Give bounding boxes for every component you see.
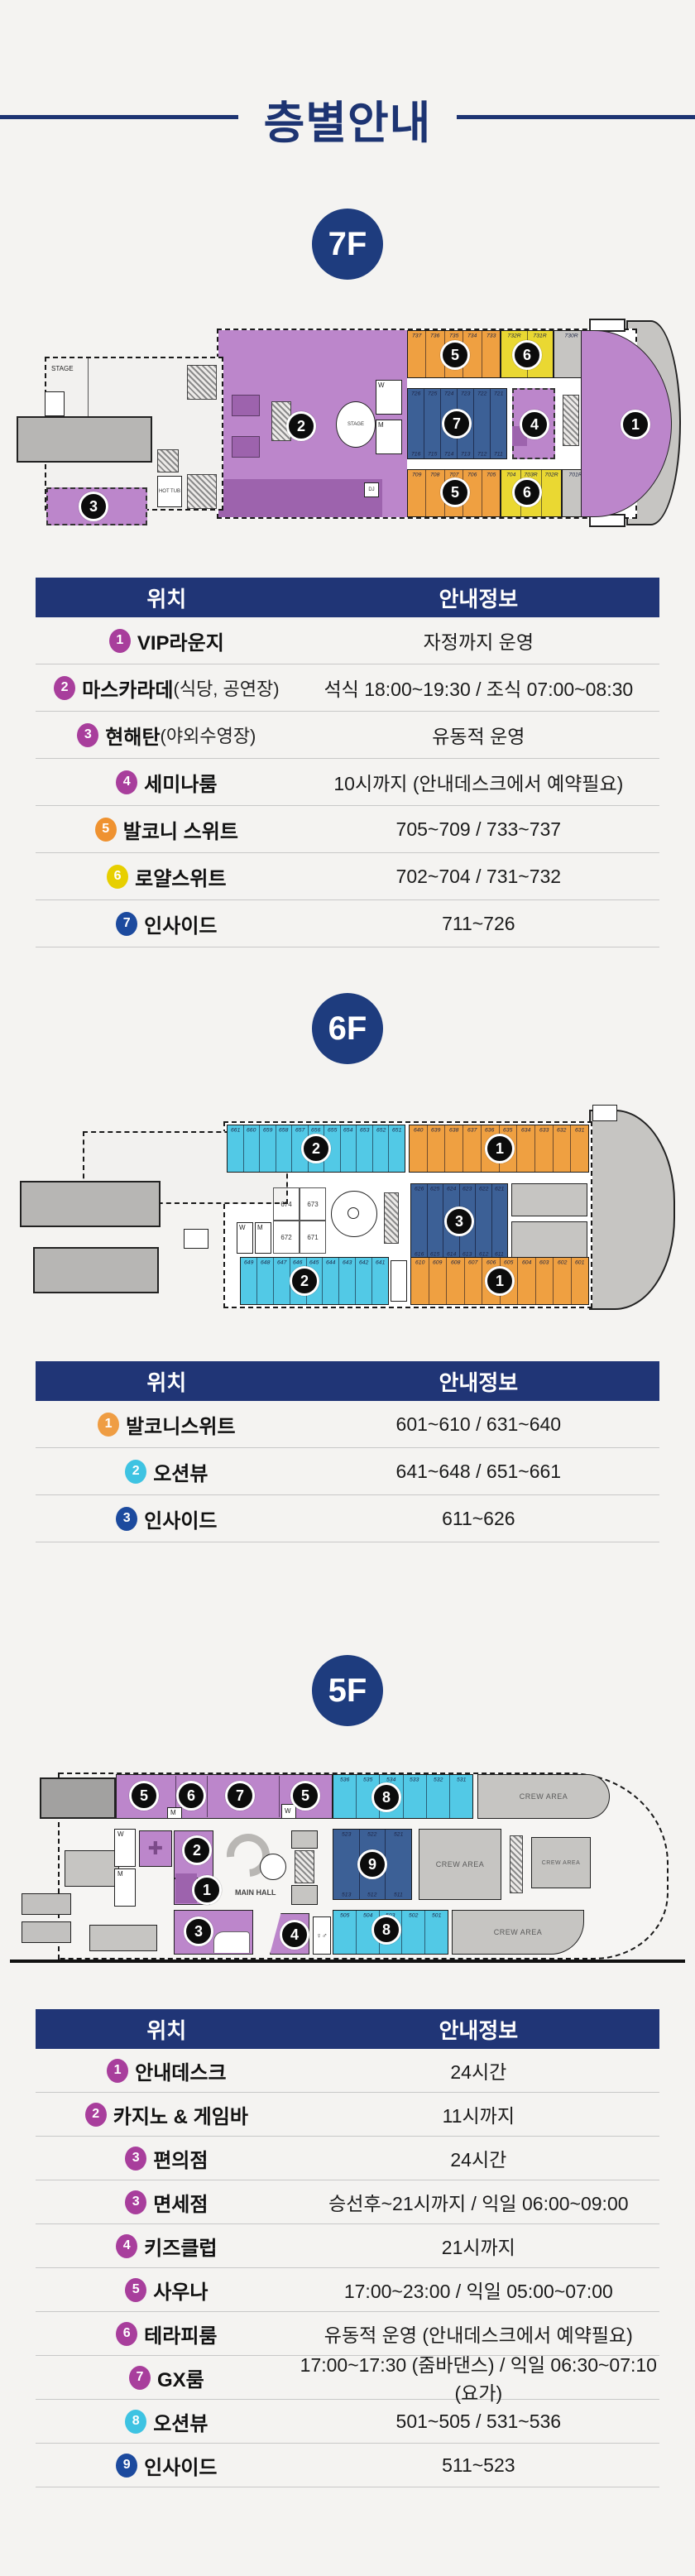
deck-plan-7f: DJ STAGE W M STAGE HOT TUB 7377367357347…	[10, 319, 685, 544]
table-row: 7 인사이드 711~726	[36, 900, 659, 947]
plan-marker-1: 1	[192, 1875, 222, 1905]
plan-marker-2: 2	[182, 1835, 212, 1865]
cabin-cell: 709	[408, 470, 426, 516]
location-cell: 2 오션뷰	[36, 1457, 298, 1486]
toilet-w-mid-label: W	[117, 1830, 124, 1838]
cabin-cell: 653	[357, 1125, 373, 1172]
location-info: 601~610 / 631~640	[298, 1413, 659, 1436]
venue-stage-label: STAGE	[347, 422, 364, 428]
cabin-cell: 602	[554, 1258, 572, 1304]
main-hall-label: MAIN HALL	[235, 1888, 276, 1897]
cabin-cell: 660	[244, 1125, 261, 1172]
deck-badge-6f: 6F	[312, 993, 383, 1064]
location-number-badge: 4	[116, 2234, 137, 2258]
toilet-m-label: M	[378, 421, 384, 429]
location-info: 승선후~21시까지 / 익일 06:00~09:00	[298, 2188, 659, 2216]
location-cell: 8 오션뷰	[36, 2407, 298, 2436]
plan-marker-2: 2	[286, 411, 316, 441]
table-row: 9 인사이드 511~523	[36, 2444, 659, 2487]
cabin-cell: 536	[333, 1775, 357, 1818]
table-row: 4 세미나룸 10시까지 (안내데스크에서 예약필요)	[36, 759, 659, 806]
elevator-7f	[563, 395, 579, 446]
cabin-cell: 616	[411, 1221, 428, 1259]
cabin-cell: 642	[356, 1258, 372, 1304]
location-number-badge: 5	[95, 818, 117, 842]
location-name: 마스카라데	[82, 674, 173, 703]
deck-plan-5f: M W 536535534533532531 CREW AREA W M ✚ M…	[10, 1771, 685, 1976]
location-subtitle: (식당, 공연장)	[174, 674, 280, 701]
small-room: 672	[273, 1221, 300, 1254]
cabin-cell: 632	[554, 1125, 572, 1172]
location-number-badge: 1	[98, 1413, 119, 1437]
cabin-cell: 715	[424, 424, 441, 458]
facility-divider-2	[207, 1776, 208, 1817]
bow-hull-6f	[589, 1110, 675, 1310]
plan-marker-2-top: 2	[301, 1134, 331, 1163]
cabin-cell: 521	[386, 1830, 411, 1864]
toilet-w-label-6f: W	[239, 1224, 246, 1231]
location-name: 오션뷰	[153, 2407, 208, 2436]
location-cell: 7 GX룸	[36, 2363, 298, 2392]
location-number-badge: 6	[107, 865, 128, 889]
location-info: 641~648 / 651~661	[298, 1461, 659, 1483]
deck-table-6f: 위치 안내정보 1 발코니스위트 601~610 / 631~640 2 오션뷰…	[36, 1361, 659, 1542]
location-cell: 4 세미나룸	[36, 768, 298, 797]
deck-seating-bottom	[187, 474, 217, 509]
cabin-cell: 505	[333, 1911, 357, 1954]
toilet-m-7f: M	[376, 420, 402, 454]
plan-marker-6: 6	[176, 1781, 206, 1811]
location-name: 오션뷰	[153, 1457, 208, 1486]
crew-box-6f-top	[511, 1183, 587, 1216]
toilet-w-7f: W	[376, 380, 402, 415]
crew-area-label: CREW AREA	[542, 1860, 581, 1866]
toilet-m-6f: M	[255, 1222, 271, 1254]
cabin-cell: 625	[428, 1184, 444, 1221]
small-room: 674	[273, 1187, 300, 1221]
cabin-cell: 634	[517, 1125, 535, 1172]
location-info: 24시간	[298, 2056, 659, 2084]
lifeboat-5f-1	[65, 1850, 119, 1887]
crew-area-label: CREW AREA	[520, 1792, 568, 1801]
plan-marker-7: 7	[225, 1781, 255, 1811]
location-info: 10시까지 (안내데스크에서 예약필요)	[298, 768, 659, 796]
m-label-5f: M	[170, 1809, 176, 1816]
cabin-cell: 647	[274, 1258, 290, 1304]
plan-marker-1-top: 1	[485, 1134, 515, 1163]
location-cell: 6 테라피룸	[36, 2319, 298, 2348]
location-info: 702~704 / 731~732	[298, 866, 659, 888]
cabin-cell: 641	[372, 1258, 388, 1304]
elevator-6f	[384, 1192, 399, 1244]
cabin-cell: 622	[476, 1184, 492, 1221]
hot-tub: HOT TUB	[157, 476, 182, 507]
location-info: 자정까지 운영	[298, 626, 659, 655]
location-number-badge: 3	[125, 2147, 146, 2171]
facility-divider-3	[279, 1776, 280, 1817]
location-number-badge: 1	[107, 2059, 128, 2083]
location-subtitle: (야외수영장)	[161, 722, 256, 748]
cabin-cell: 612	[476, 1221, 492, 1259]
cabin-cell: 651	[389, 1125, 405, 1172]
kids-play-structure	[213, 1931, 250, 1953]
location-info: 611~626	[298, 1508, 659, 1530]
toilet-mid-6f	[391, 1260, 407, 1302]
plan-marker-3: 3	[79, 492, 108, 521]
location-name: 카지노 & 게임바	[113, 2100, 248, 2129]
lifeboat-5f-2	[89, 1925, 157, 1951]
cabin-cell: 649	[241, 1258, 257, 1304]
table-row: 1 안내데스크 24시간	[36, 2049, 659, 2093]
cabin-cell: 601	[572, 1258, 589, 1304]
plan-marker-4: 4	[520, 410, 549, 439]
cabin-cell: 726	[408, 389, 424, 424]
table-row: 4 키즈클럽 21시까지	[36, 2224, 659, 2268]
location-name: 인사이드	[144, 2451, 217, 2480]
cabin-cell: 523	[333, 1830, 360, 1864]
location-name: 면세점	[153, 2188, 208, 2217]
location-number-badge: 2	[54, 676, 75, 700]
location-number-badge: 3	[116, 1507, 137, 1531]
venue-furniture-2	[232, 436, 260, 458]
bow-notch-6f	[592, 1105, 617, 1121]
cabin-cell: 705	[482, 470, 500, 516]
location-name: 로얄스위트	[135, 862, 226, 891]
plan-marker-2-bottom: 2	[290, 1266, 319, 1296]
cabin-cell: 637	[463, 1125, 482, 1172]
cabin-cell: 513	[333, 1864, 360, 1899]
elevator-lobby-top	[291, 1830, 318, 1849]
spiral-staircase-6f	[331, 1191, 377, 1237]
plan-marker-7: 7	[442, 409, 472, 439]
location-cell: 3 인사이드	[36, 1504, 298, 1533]
cabin-cell: 711	[491, 424, 506, 458]
cabin-cell: 644	[323, 1258, 339, 1304]
plan-marker-8-top: 8	[371, 1782, 401, 1812]
location-name: 편의점	[153, 2144, 208, 2173]
location-number-badge: 7	[129, 2366, 151, 2390]
table-row: 5 사우나 17:00~23:00 / 익일 05:00~07:00	[36, 2268, 659, 2312]
location-info: 11시까지	[298, 2100, 659, 2128]
location-cell: 3 현해탄(야외수영장)	[36, 721, 298, 750]
col-header-info: 안내정보	[298, 1366, 659, 1397]
venue-furniture-1	[232, 395, 260, 416]
cabin-cell: 654	[341, 1125, 357, 1172]
cabin-cell: 659	[260, 1125, 276, 1172]
cabin-cell: 631	[571, 1125, 588, 1172]
location-info: 유동적 운영	[298, 721, 659, 749]
table-row: 1 발코니스위트 601~610 / 631~640	[36, 1401, 659, 1448]
location-info: 유동적 운영 (안내데스크에서 예약필요)	[298, 2319, 659, 2348]
table-body-5f: 1 안내데스크 24시간 2 카지노 & 게임바 11시까지 3 편의점 24시…	[36, 2049, 659, 2487]
deck-seating-mid	[157, 449, 179, 473]
venue-stage: STAGE	[336, 401, 376, 448]
location-number-badge: 1	[109, 629, 131, 653]
spiral-core	[347, 1207, 359, 1219]
cabin-cell: 603	[536, 1258, 554, 1304]
cabin-cell: 532	[427, 1775, 450, 1818]
plan-marker-6-top: 6	[512, 340, 542, 370]
col-header-info: 안내정보	[298, 583, 659, 613]
plan-marker-5a: 5	[129, 1781, 159, 1811]
location-name: GX룸	[157, 2363, 204, 2392]
masquerade-dark-strip	[218, 479, 382, 517]
location-info: 석식 18:00~19:30 / 조식 07:00~08:30	[298, 674, 659, 702]
toilet-bottom-5f: ♀♂	[313, 1916, 331, 1955]
cabin-cell: 608	[447, 1258, 465, 1304]
plan-marker-5b: 5	[290, 1781, 320, 1811]
location-number-badge: 9	[116, 2454, 137, 2478]
location-cell: 9 인사이드	[36, 2451, 298, 2480]
table-row: 6 로얄스위트 702~704 / 731~732	[36, 853, 659, 900]
crew-area-bottom: CREW AREA	[452, 1910, 584, 1955]
plan-marker-5-top: 5	[440, 340, 470, 370]
location-number-badge: 3	[125, 2190, 146, 2214]
table-row: 2 오션뷰 641~648 / 651~661	[36, 1448, 659, 1495]
table-row: 3 편의점 24시간	[36, 2137, 659, 2180]
table-header-7f: 위치 안내정보	[36, 578, 659, 617]
location-name: 사우나	[153, 2276, 208, 2305]
deck-table-5f: 위치 안내정보 1 안내데스크 24시간 2 카지노 & 게임바 11시까지 3…	[36, 2009, 659, 2487]
crew-stairs	[510, 1835, 523, 1893]
toilet-m-label-6f: M	[257, 1224, 263, 1231]
cabin-cell: 610	[411, 1258, 429, 1304]
crew-area-bow: CREW AREA	[531, 1837, 591, 1888]
cabin-cell: 609	[429, 1258, 448, 1304]
location-info: 711~726	[298, 913, 659, 935]
title-line-right	[457, 115, 695, 119]
cabin-cell: 737	[408, 331, 426, 377]
cabin-cell: 648	[257, 1258, 274, 1304]
location-cell: 1 VIP라운지	[36, 626, 298, 655]
location-name: 발코니스위트	[126, 1410, 235, 1439]
lifeboat-bar-6f-top	[20, 1181, 161, 1227]
location-cell: 6 로얄스위트	[36, 862, 298, 891]
cabin-cell: 626	[411, 1184, 428, 1221]
deck-table-7f: 위치 안내정보 1 VIP라운지 자정까지 운영 2 마스카라데(식당, 공연장…	[36, 578, 659, 947]
medical-room: ✚	[139, 1830, 172, 1867]
location-info: 511~523	[298, 2454, 659, 2477]
cabin-cell: 640	[410, 1125, 428, 1172]
table-row: 3 현해탄(야외수영장) 유동적 운영	[36, 712, 659, 759]
table-body-7f: 1 VIP라운지 자정까지 운영 2 마스카라데(식당, 공연장) 석식 18:…	[36, 617, 659, 947]
cabin-cell: 502	[402, 1911, 425, 1954]
stern-structure-5f	[40, 1777, 116, 1819]
stern-box-5f-2	[22, 1921, 71, 1943]
hall-feature-circle	[260, 1854, 286, 1880]
cabin-cell: 733	[482, 331, 500, 377]
location-name: 키즈클럽	[144, 2232, 217, 2261]
deck-stage-label: STAGE	[51, 365, 74, 372]
deck-divider	[88, 358, 89, 418]
hot-tub-label: HOT TUB	[159, 489, 180, 495]
location-name: 안내데스크	[135, 2056, 226, 2085]
cross-icon: ✚	[148, 1838, 163, 1859]
location-number-badge: 2	[125, 1460, 146, 1484]
table-row: 8 오션뷰 501~505 / 531~536	[36, 2400, 659, 2444]
crew-area-label: CREW AREA	[494, 1928, 543, 1936]
deck-badge-7f: 7F	[312, 209, 383, 280]
deck-booth	[45, 391, 65, 416]
table-body-6f: 1 발코니스위트 601~610 / 631~640 2 오션뷰 641~648…	[36, 1401, 659, 1542]
location-cell: 1 안내데스크	[36, 2056, 298, 2085]
deck-plan-6f: 661660659658657656655654653652651 640639…	[10, 1105, 685, 1316]
cabin-cell: 531	[450, 1775, 472, 1818]
location-name: 세미나룸	[144, 768, 217, 797]
restroom-figures: ♀♂	[316, 1931, 328, 1940]
cabin-cell: 615	[428, 1221, 444, 1259]
cabin-cell: 607	[465, 1258, 483, 1304]
deck-seating-top	[187, 365, 217, 400]
location-info: 17:00~17:30 (줌바댄스) / 익일 06:30~07:10 (요가)	[298, 2349, 659, 2406]
crew-box-6f-bottom	[511, 1221, 587, 1259]
cabin-cell: 702R	[542, 470, 561, 516]
small-room: 671	[300, 1221, 326, 1254]
table-row: 3 인사이드 611~626	[36, 1495, 659, 1542]
location-number-badge: 3	[77, 723, 98, 747]
location-name: 인사이드	[144, 909, 217, 938]
crew-area-mid: CREW AREA	[419, 1829, 501, 1900]
table-row: 3 면세점 승선후~21시까지 / 익일 06:00~09:00	[36, 2180, 659, 2224]
toilet-w-6f: W	[237, 1222, 253, 1254]
location-cell: 3 편의점	[36, 2144, 298, 2173]
location-info: 705~709 / 733~737	[298, 818, 659, 841]
cabin-cell: 722	[474, 389, 491, 424]
cabin-cell: 638	[445, 1125, 463, 1172]
lifeboat-bar-6f-bottom	[33, 1247, 159, 1293]
cabin-cell: 643	[339, 1258, 356, 1304]
location-info: 501~505 / 531~536	[298, 2411, 659, 2433]
location-name: 발코니 스위트	[123, 815, 238, 844]
location-number-badge: 4	[116, 770, 137, 794]
location-number-badge: 8	[125, 2410, 146, 2434]
small-room: 673	[300, 1187, 326, 1221]
location-info: 17:00~23:00 / 익일 05:00~07:00	[298, 2276, 659, 2304]
location-cell: 3 면세점	[36, 2188, 298, 2217]
location-cell: 2 카지노 & 게임바	[36, 2100, 298, 2129]
table-header-5f: 위치 안내정보	[36, 2009, 659, 2049]
col-header-location: 위치	[36, 2014, 298, 2045]
cabin-cell: 511	[386, 1864, 411, 1899]
elevator-5f	[295, 1850, 314, 1883]
plan-marker-8-bottom: 8	[371, 1915, 401, 1945]
location-name: 인사이드	[144, 1504, 217, 1533]
cabin-cell: 658	[276, 1125, 293, 1172]
plan-marker-3: 3	[444, 1206, 474, 1236]
location-info: 21시까지	[298, 2232, 659, 2260]
mid-rooms-6f: 674673672671	[273, 1187, 326, 1254]
toilet-w-label: W	[378, 381, 385, 389]
cabin-cell: 712	[474, 424, 491, 458]
table-header-6f: 위치 안내정보	[36, 1361, 659, 1401]
cabin-cell: 725	[424, 389, 441, 424]
cabin-cell: 501	[425, 1911, 448, 1954]
deck-badge-5f: 5F	[312, 1655, 383, 1726]
location-number-badge: 2	[85, 2103, 107, 2127]
location-number-badge: 7	[116, 912, 137, 936]
plan-marker-5-bottom: 5	[440, 477, 470, 507]
cabin-cell: 611	[492, 1221, 508, 1259]
elevator-lobby-bottom	[291, 1885, 318, 1905]
cabin-cell: 621	[492, 1184, 508, 1221]
cabin-cell: 633	[535, 1125, 554, 1172]
location-number-badge: 5	[125, 2278, 146, 2302]
w-label-5f: W	[285, 1807, 291, 1815]
location-number-badge: 6	[116, 2322, 137, 2346]
location-name: VIP라운지	[137, 626, 224, 655]
plan-marker-3: 3	[184, 1916, 213, 1946]
lifeboat-bar-7f	[17, 416, 152, 463]
location-cell: 7 인사이드	[36, 909, 298, 938]
plan-marker-1-bottom: 1	[485, 1266, 515, 1296]
cabin-cell: 716	[408, 424, 424, 458]
location-name: 현해탄	[105, 721, 160, 750]
table-row: 2 카지노 & 게임바 11시까지	[36, 2093, 659, 2137]
cabin-cell: 604	[518, 1258, 536, 1304]
cabin-cell: 652	[373, 1125, 390, 1172]
location-cell: 1 발코니스위트	[36, 1410, 298, 1439]
dj-label: DJ	[368, 487, 374, 493]
crew-area-top: CREW AREA	[477, 1774, 610, 1819]
plan-marker-6-bottom: 6	[512, 477, 542, 507]
cabin-cell: 533	[404, 1775, 427, 1818]
cabin-cell: 661	[228, 1125, 244, 1172]
table-row: 5 발코니 스위트 705~709 / 733~737	[36, 806, 659, 853]
location-cell: 2 마스카라데(식당, 공연장)	[36, 674, 298, 703]
location-info: 24시간	[298, 2144, 659, 2172]
cabin-cell: 639	[428, 1125, 446, 1172]
toilet-w-mid-5f: W	[114, 1829, 136, 1867]
location-cell: 5 발코니 스위트	[36, 815, 298, 844]
table-row: 1 VIP라운지 자정까지 운영	[36, 617, 659, 664]
plan-marker-4: 4	[280, 1920, 309, 1950]
table-row: 2 마스카라데(식당, 공연장) 석식 18:00~19:30 / 조식 07:…	[36, 664, 659, 712]
crew-area-label: CREW AREA	[436, 1860, 485, 1868]
ocean-view-cabins-top-5f: 536535534533532531	[333, 1774, 473, 1819]
table-row: 7 GX룸 17:00~17:30 (줌바댄스) / 익일 06:30~07:1…	[36, 2356, 659, 2400]
col-header-location: 위치	[36, 1366, 298, 1397]
plan-marker-9: 9	[357, 1849, 387, 1879]
stern-box-6f	[184, 1229, 208, 1249]
waterline-5f	[10, 1960, 685, 1963]
location-cell: 5 사우나	[36, 2276, 298, 2305]
dj-booth: DJ	[364, 482, 379, 497]
stern-box-5f-1	[22, 1893, 71, 1915]
col-header-info: 안내정보	[298, 2014, 659, 2045]
plan-marker-1: 1	[621, 410, 650, 439]
location-name: 테라피룸	[144, 2319, 217, 2348]
col-header-location: 위치	[36, 583, 298, 613]
toilet-m-mid-label: M	[117, 1870, 123, 1878]
toilet-m-mid-5f: M	[114, 1868, 136, 1907]
location-cell: 4 키즈클럽	[36, 2232, 298, 2261]
cabin-cell: 721	[491, 389, 506, 424]
